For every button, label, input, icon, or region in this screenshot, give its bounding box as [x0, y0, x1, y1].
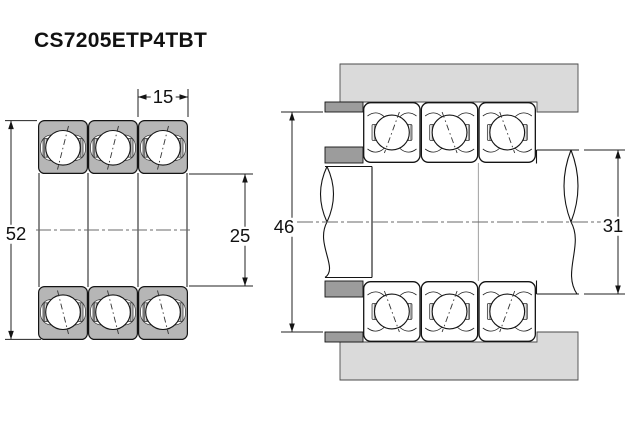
- arrow-down-icon: [615, 286, 621, 295]
- arrow-up-icon: [615, 150, 621, 159]
- part-number: CS7205ETP4TBT: [34, 29, 207, 53]
- mounted-view: [281, 64, 625, 380]
- drawing-canvas: [0, 0, 640, 440]
- bearing-technical-drawing: CS7205ETP4TBT 52 15 25 46 31: [0, 0, 640, 440]
- inner-spacer-bottom: [325, 281, 363, 297]
- outer-spacer-bottom: [325, 332, 363, 342]
- arrow-right-icon: [180, 94, 189, 100]
- dim-bearing-width: 15: [151, 88, 176, 107]
- bearing-unit: [421, 103, 477, 163]
- bearing-unit: [479, 103, 535, 163]
- dim-bore-diameter: 25: [228, 227, 253, 246]
- arrow-left-icon: [138, 94, 147, 100]
- bearing-unit: [139, 121, 188, 174]
- arrow-down-icon: [242, 278, 248, 287]
- arrow-up-icon: [289, 112, 295, 121]
- arrow-down-icon: [8, 331, 14, 340]
- dim-housing-abutment: 46: [272, 218, 297, 237]
- arrow-up-icon: [8, 121, 14, 130]
- inner-spacer-top: [325, 147, 363, 163]
- dim-outside-diameter: 52: [4, 225, 29, 244]
- outer-spacer-top: [325, 102, 363, 112]
- bearing-unit: [364, 103, 420, 163]
- bearing-unit: [39, 121, 88, 174]
- arrow-down-icon: [289, 324, 295, 333]
- arrow-up-icon: [242, 174, 248, 183]
- bearing-unit: [89, 121, 138, 174]
- sectional-view: [5, 89, 253, 339]
- dim-shaft-abutment: 31: [601, 217, 626, 236]
